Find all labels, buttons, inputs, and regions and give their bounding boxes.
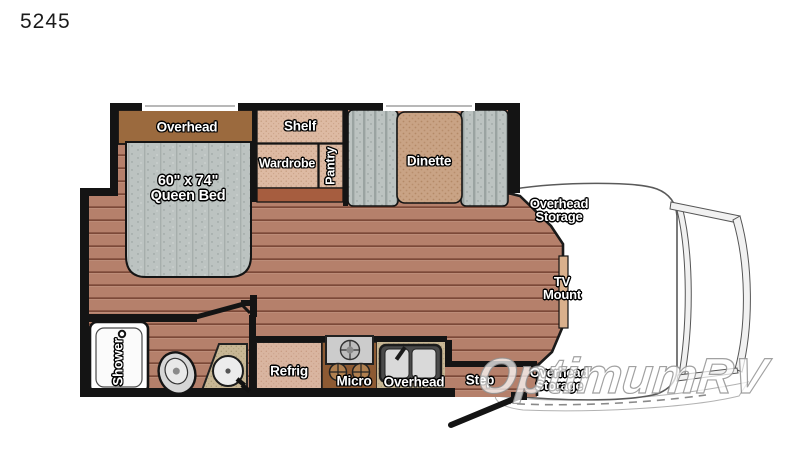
- wardrobe-base-trim: [257, 188, 343, 202]
- label-wardrobe: Wardrobe: [259, 157, 315, 171]
- wall-left-upper: [110, 103, 118, 196]
- label-overhead-storage-top: Overhead Storage: [530, 197, 588, 223]
- label-queen-bed: 60" x 74" Queen Bed: [151, 174, 226, 204]
- window-dinette: [383, 102, 475, 111]
- label-tv-line2: Mount: [543, 288, 581, 301]
- model-number: 5245: [20, 10, 71, 34]
- label-pantry: Pantry: [324, 147, 338, 185]
- wall-right-of-dinette: [508, 103, 520, 193]
- label-bed-size: 60" x 74": [151, 174, 226, 189]
- wall-bed-shelf-divider: [252, 110, 257, 202]
- window-bedroom: [142, 102, 238, 111]
- wall-pantry-dinette-divider: [343, 110, 348, 206]
- label-shelf: Shelf: [284, 119, 316, 133]
- wall-bath-top: [88, 314, 197, 322]
- label-ohs-top-line2: Storage: [530, 210, 588, 223]
- label-bed-name: Queen Bed: [151, 189, 226, 204]
- label-bed-overhead: Overhead: [157, 120, 218, 134]
- wall-left-main: [80, 188, 89, 395]
- label-tv-mount: TV Mount: [543, 275, 581, 301]
- watermark: OptimumRV: [475, 350, 769, 402]
- wall-bottom: [80, 388, 455, 397]
- queen-bed: [126, 142, 251, 277]
- label-kitchen-overhead: Overhead: [384, 375, 445, 389]
- label-shower: Shower: [111, 338, 125, 386]
- dinette-bench-left: [348, 110, 398, 206]
- label-dinette: Dinette: [407, 154, 451, 168]
- dinette-bench-right: [461, 110, 508, 206]
- shower-head-icon: [119, 331, 125, 337]
- floorplan-canvas: 5245: [0, 0, 800, 457]
- label-micro: Micro: [336, 374, 371, 388]
- label-refrig: Refrig: [270, 364, 308, 378]
- wall-bath-divider: [249, 315, 256, 395]
